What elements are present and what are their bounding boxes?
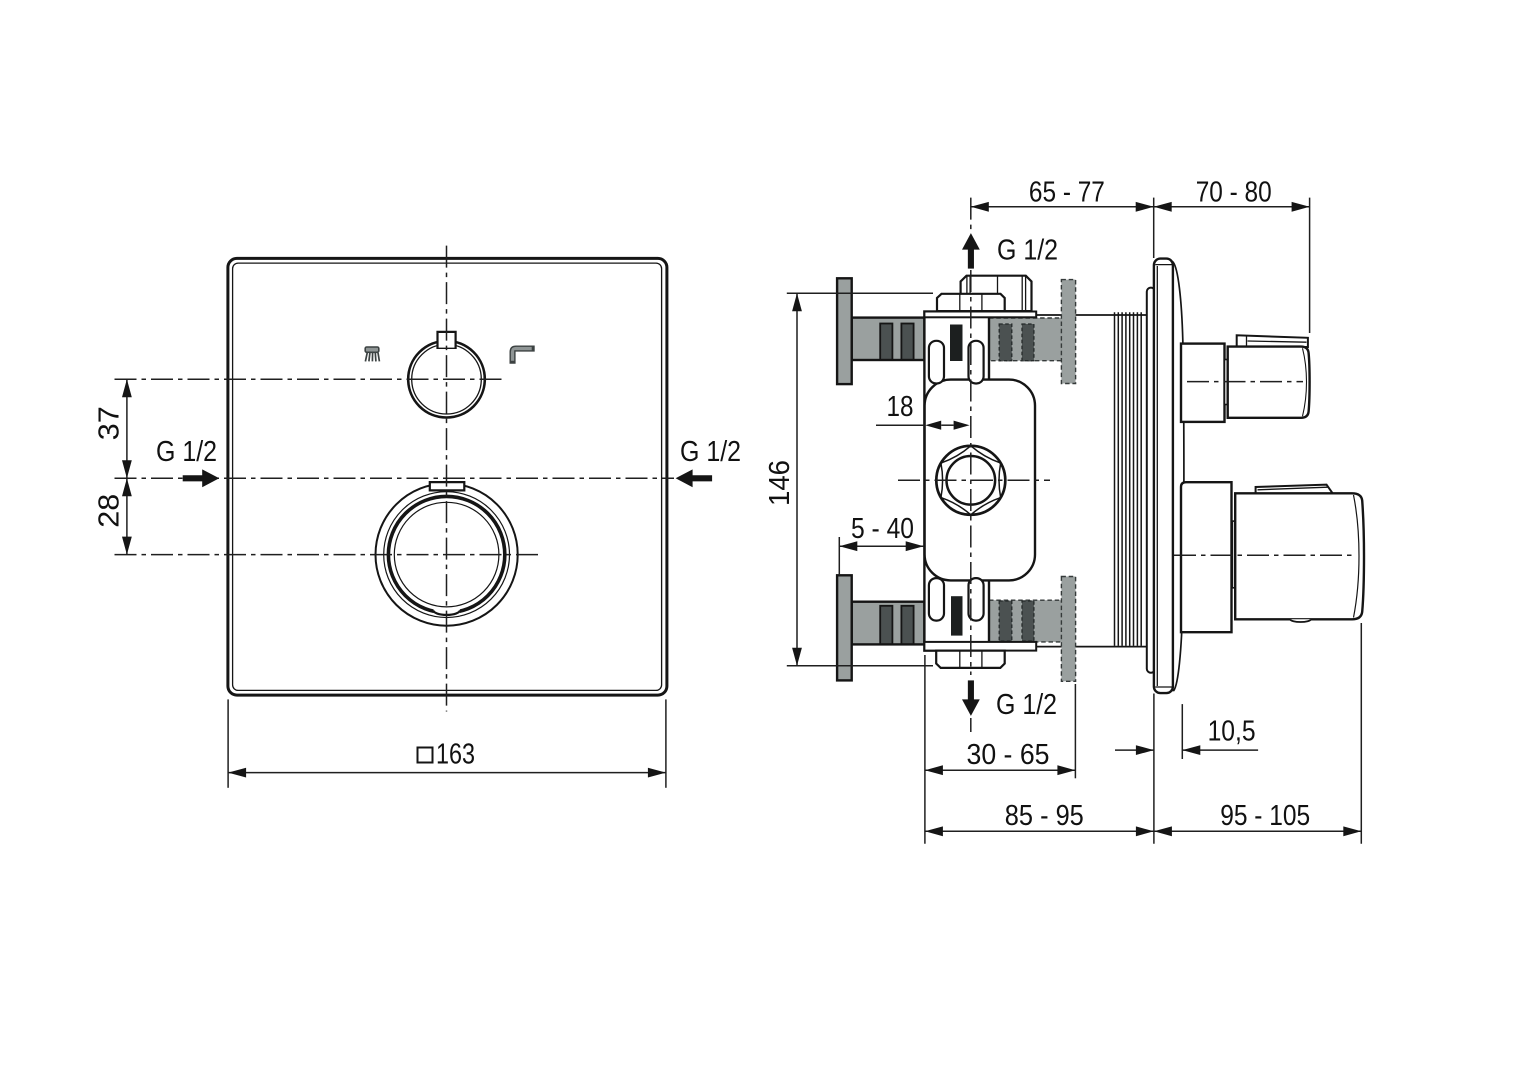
svg-text:G 1/2: G 1/2 [680, 436, 741, 468]
svg-text:5 - 40: 5 - 40 [851, 513, 914, 545]
svg-text:146: 146 [764, 460, 796, 506]
svg-text:37: 37 [94, 406, 126, 440]
svg-text:65 - 77: 65 - 77 [1029, 176, 1105, 208]
svg-text:28: 28 [94, 494, 126, 528]
svg-text:G 1/2: G 1/2 [996, 689, 1057, 721]
svg-text:70 - 80: 70 - 80 [1196, 176, 1272, 208]
svg-text:G 1/2: G 1/2 [156, 436, 217, 468]
svg-text:95 - 105: 95 - 105 [1220, 800, 1310, 832]
svg-text:18: 18 [887, 391, 914, 423]
svg-text:30 - 65: 30 - 65 [967, 739, 1050, 771]
svg-text:85 - 95: 85 - 95 [1005, 800, 1084, 832]
svg-text:163: 163 [436, 739, 475, 771]
svg-text:10,5: 10,5 [1208, 716, 1256, 748]
svg-text:G 1/2: G 1/2 [997, 235, 1058, 267]
